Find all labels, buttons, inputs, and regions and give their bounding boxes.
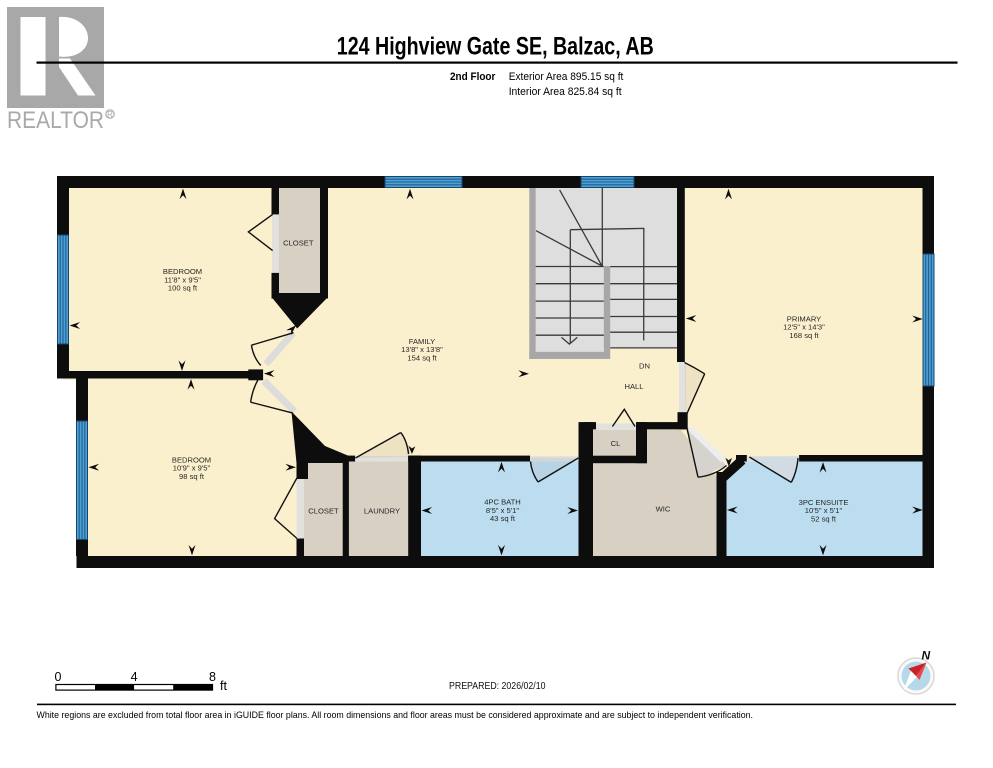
svg-text:DN: DN xyxy=(639,362,650,371)
svg-text:154 sq ft: 154 sq ft xyxy=(407,353,437,362)
svg-text:ft: ft xyxy=(220,679,227,693)
svg-text:CLOSET: CLOSET xyxy=(308,507,339,516)
svg-text:CL: CL xyxy=(611,439,621,448)
svg-text:WIC: WIC xyxy=(656,505,671,514)
svg-text:N: N xyxy=(922,649,931,663)
svg-text:HALL: HALL xyxy=(625,382,644,391)
svg-text:168 sq ft: 168 sq ft xyxy=(789,331,819,340)
svg-text:52 sq ft: 52 sq ft xyxy=(811,514,837,523)
svg-text:LAUNDRY: LAUNDRY xyxy=(364,507,400,516)
svg-text:R: R xyxy=(107,110,113,119)
svg-text:0: 0 xyxy=(55,670,62,684)
svg-text:43 sq ft: 43 sq ft xyxy=(490,514,516,523)
svg-text:4: 4 xyxy=(131,670,138,684)
svg-text:98 sq ft: 98 sq ft xyxy=(179,472,205,481)
svg-text:White regions are excluded fro: White regions are excluded from total fl… xyxy=(37,710,754,720)
svg-text:Exterior Area 895.15 sq ft: Exterior Area 895.15 sq ft xyxy=(509,71,624,83)
svg-text:100 sq ft: 100 sq ft xyxy=(168,284,198,293)
svg-text:2nd Floor: 2nd Floor xyxy=(450,71,495,83)
svg-text:Interior Area 825.84 sq ft: Interior Area 825.84 sq ft xyxy=(509,86,622,98)
svg-text:8: 8 xyxy=(209,670,216,684)
svg-text:PREPARED: 2026/02/10: PREPARED: 2026/02/10 xyxy=(449,681,546,692)
svg-text:124 Highview Gate SE, Balzac,: 124 Highview Gate SE, Balzac, AB xyxy=(337,33,654,61)
svg-text:REALTOR: REALTOR xyxy=(7,107,104,134)
svg-text:CLOSET: CLOSET xyxy=(283,239,314,248)
